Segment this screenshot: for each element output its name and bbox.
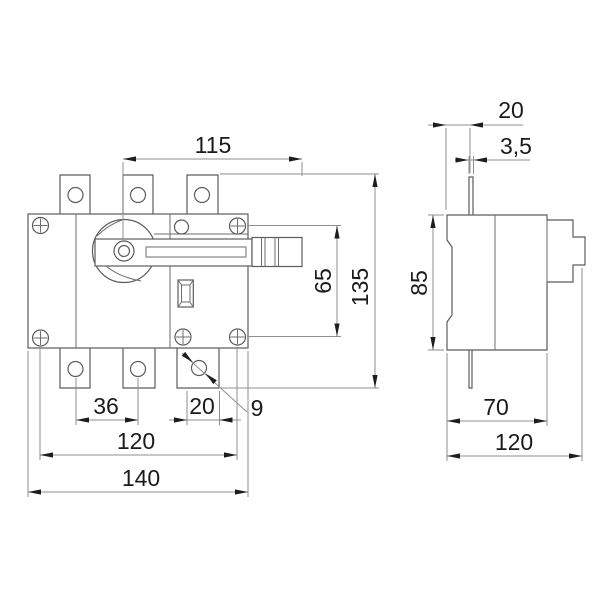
dim-label-36: 36 [93,393,119,419]
terminal-tab-bottom-1 [60,348,90,388]
mounting-screw-icon [33,330,49,346]
side-body [447,215,585,350]
terminal-tab-top-1 [60,175,90,214]
dim-label-85: 85 [406,270,432,296]
terminal-tab-bottom-2 [123,348,155,388]
dimension-drawing-page: 115 65 135 36 [0,0,600,600]
din-pin-top [469,177,473,215]
terminal-tab-top-3 [187,175,218,214]
dim-label-70: 70 [483,394,509,420]
front-view [28,175,302,388]
dim-label-20-front: 20 [189,393,215,419]
din-pin-bottom [469,350,472,388]
dim-label-65: 65 [310,268,336,294]
mounting-screw-icon [230,329,246,345]
mounting-screw-icon [230,218,246,234]
terminal-tabs-top [60,175,218,214]
dim-label-120-side: 120 [495,429,533,455]
dim-label-140: 140 [122,465,160,491]
dim-label-3-5: 3,5 [500,133,532,159]
dim-label-135: 135 [347,268,373,306]
dim-pin-width: 3,5 [455,133,532,174]
dim-label-9: 9 [251,395,264,421]
dim-label-115: 115 [195,132,232,158]
drawing-canvas: 115 65 135 36 [0,0,600,600]
dim-body-height: 85 [406,215,444,350]
side-view [447,177,585,388]
mounting-screw-icon [175,329,191,345]
terminal-tabs-bottom [60,348,219,388]
dim-label-20-side: 20 [498,97,524,123]
terminal-tab-top-2 [123,175,153,214]
mounting-screw-icon [33,218,49,234]
dim-label-120-front: 120 [117,428,155,454]
handle-grip [252,238,302,267]
